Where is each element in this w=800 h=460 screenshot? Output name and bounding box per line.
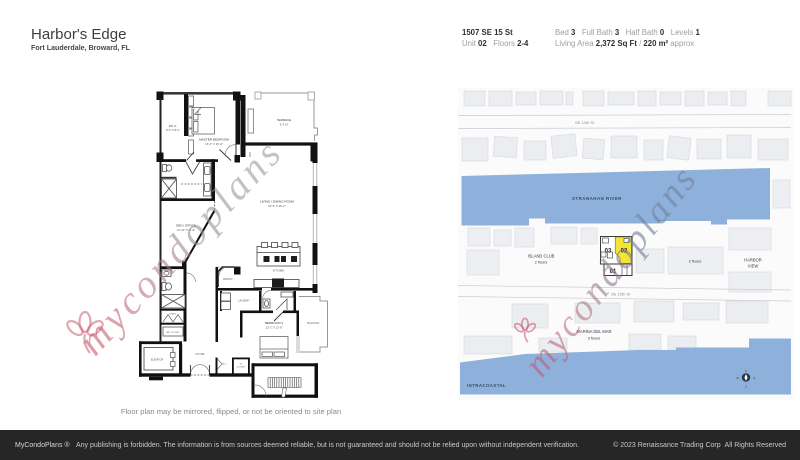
- svg-text:FOYER: FOYER: [196, 352, 205, 356]
- svg-text:16'-0" X 15'-0": 16'-0" X 15'-0": [205, 142, 223, 146]
- svg-text:2 floors: 2 floors: [535, 260, 548, 265]
- svg-text:9' X 13': 9' X 13': [280, 123, 289, 127]
- svg-text:TERRACE: TERRACE: [277, 118, 291, 122]
- svg-text:KITCHEN: KITCHEN: [273, 269, 285, 273]
- svg-text:5'-5" X 8'-2": 5'-5" X 8'-2": [166, 128, 180, 132]
- svg-text:W: W: [736, 376, 739, 380]
- svg-text:LIVING / DINING ROOM: LIVING / DINING ROOM: [260, 200, 294, 204]
- svg-text:BALCONY: BALCONY: [308, 322, 320, 325]
- svg-text:S: S: [745, 385, 747, 389]
- svg-text:12'-2" X 12'-8": 12'-2" X 12'-8": [266, 325, 283, 329]
- svg-text:24'-6" X 26'-2": 24'-6" X 26'-2": [268, 204, 286, 208]
- svg-text:E: E: [753, 376, 755, 380]
- svg-text:VIEW: VIEW: [748, 264, 759, 269]
- svg-text:HARBOR: HARBOR: [744, 258, 762, 263]
- svg-text:STRANAHAN RIVER: STRANAHAN RIVER: [572, 196, 622, 201]
- svg-text:N: N: [745, 369, 747, 373]
- svg-text:W.: W.: [240, 364, 243, 366]
- svg-text:INTRACOASTAL: INTRACOASTAL: [467, 383, 506, 388]
- svg-text:LAUNDRY: LAUNDRY: [238, 300, 250, 303]
- svg-text:LINEN: LINEN: [169, 314, 176, 316]
- svg-text:ISLAND CLUB: ISLAND CLUB: [528, 254, 555, 259]
- svg-text:BEDROOM 3: BEDROOM 3: [265, 321, 283, 325]
- svg-text:2 floors: 2 floors: [689, 259, 702, 264]
- svg-text:W.C.: W.C.: [222, 364, 227, 366]
- svg-text:CLOSET: CLOSET: [237, 367, 246, 369]
- svg-text:W.I.C.: W.I.C.: [169, 124, 177, 128]
- svg-text:A/C CLOSET: A/C CLOSET: [166, 331, 180, 334]
- svg-text:PANTRY: PANTRY: [223, 278, 233, 281]
- svg-text:3 floors: 3 floors: [588, 336, 601, 341]
- svg-text:SE 14th St: SE 14th St: [575, 120, 595, 125]
- svg-text:ELEVATOR: ELEVATOR: [151, 358, 164, 361]
